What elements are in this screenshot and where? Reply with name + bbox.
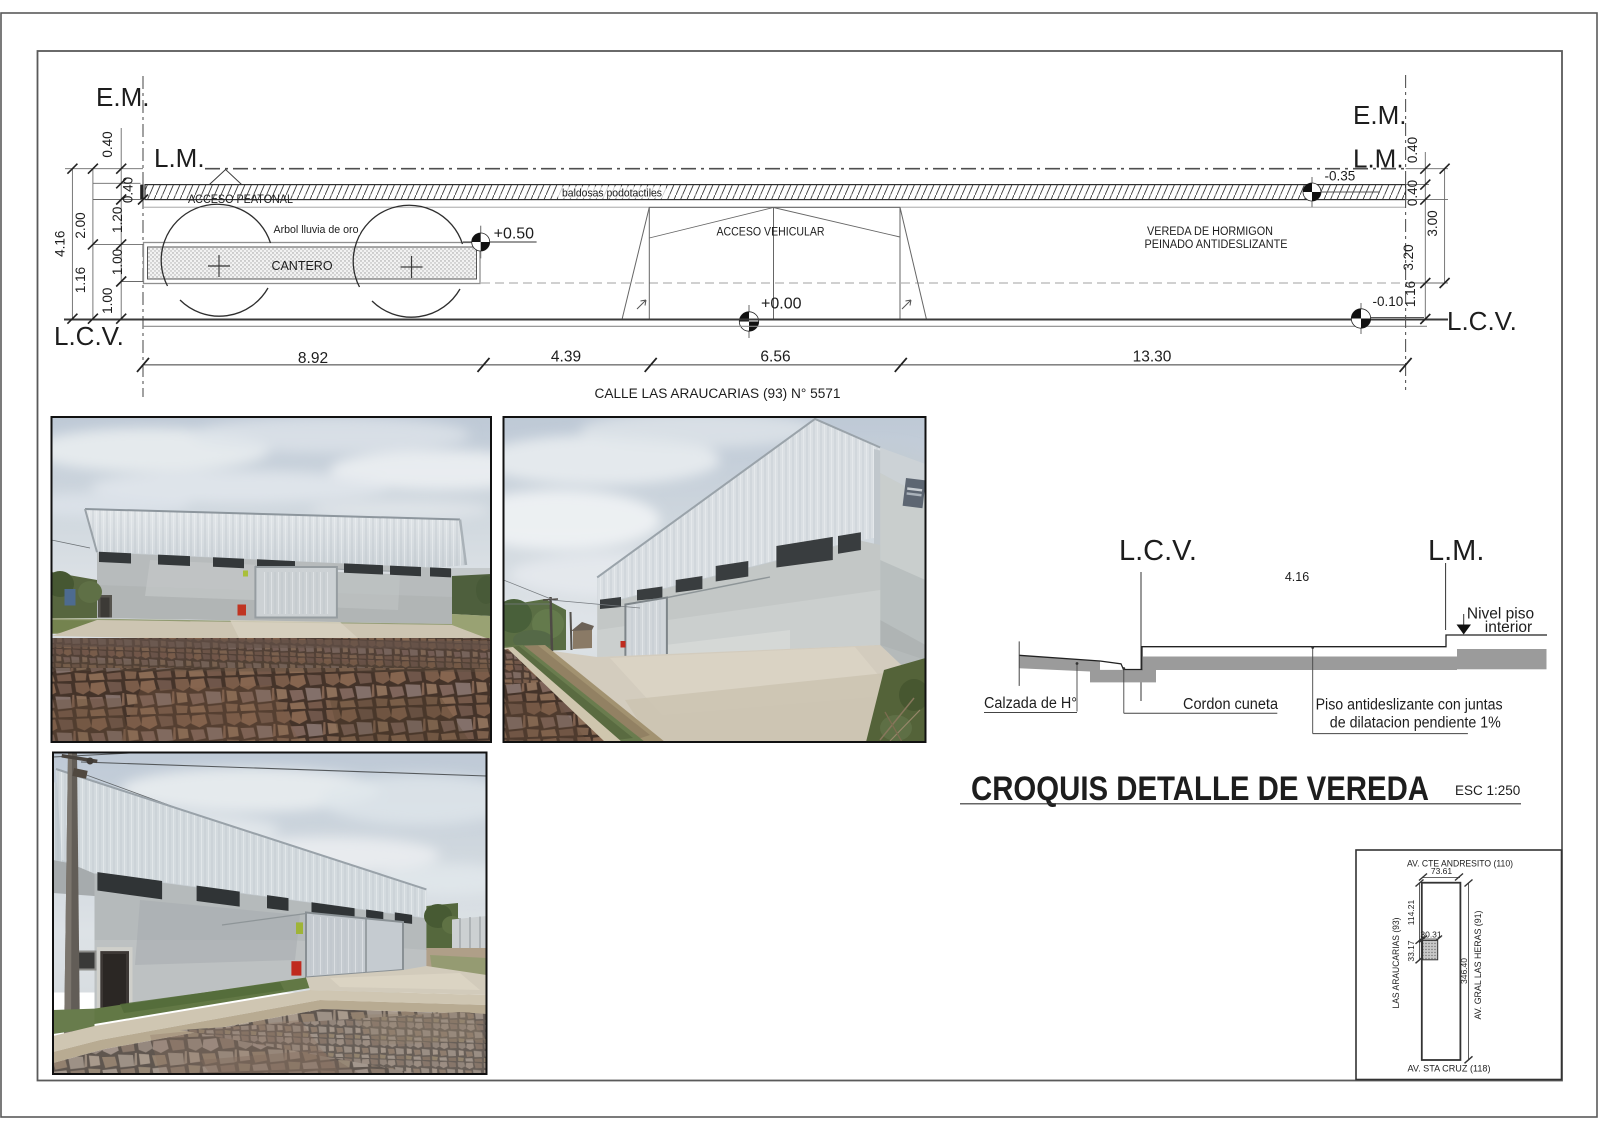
svg-text:+0.50: +0.50 <box>494 226 535 243</box>
svg-text:1.16: 1.16 <box>1403 281 1418 307</box>
svg-text:4.16: 4.16 <box>1285 570 1309 584</box>
svg-text:3.20: 3.20 <box>1401 244 1416 270</box>
svg-text:CANTERO: CANTERO <box>271 259 332 273</box>
svg-text:ESC 1:250: ESC 1:250 <box>1455 783 1520 798</box>
svg-text:L.M.: L.M. <box>1353 144 1404 174</box>
svg-text:1.00: 1.00 <box>100 288 115 314</box>
svg-text:E.M.: E.M. <box>1353 100 1406 130</box>
svg-text:LAS ARAUCARIAS (93): LAS ARAUCARIAS (93) <box>1391 918 1402 1009</box>
svg-text:baldosas podotactiles: baldosas podotactiles <box>562 188 662 200</box>
svg-text:0.40: 0.40 <box>121 177 136 203</box>
svg-text:0.40: 0.40 <box>1405 137 1420 163</box>
svg-text:VEREDA DE HORMIGON: VEREDA DE HORMIGON <box>1147 226 1273 238</box>
svg-text:L.C.V.: L.C.V. <box>1447 306 1517 336</box>
svg-text:73.61: 73.61 <box>1431 866 1453 876</box>
svg-text:AV. CTE ANDRESITO (110): AV. CTE ANDRESITO (110) <box>1407 859 1513 870</box>
svg-text:Cordon cuneta: Cordon cuneta <box>1183 696 1278 713</box>
svg-text:L.C.V.: L.C.V. <box>54 321 124 351</box>
svg-text:PEINADO ANTIDESLIZANTE: PEINADO ANTIDESLIZANTE <box>1145 239 1288 251</box>
svg-text:ACCESO PEATONAL: ACCESO PEATONAL <box>188 194 294 206</box>
svg-text:1.00: 1.00 <box>110 249 125 275</box>
svg-text:1.16: 1.16 <box>73 267 88 293</box>
svg-text:ACCESO VEHICULAR: ACCESO VEHICULAR <box>717 227 825 239</box>
svg-text:2.00: 2.00 <box>73 212 88 238</box>
svg-text:AV. GRAL LAS HERAS (91): AV. GRAL LAS HERAS (91) <box>1473 911 1484 1020</box>
svg-text:de dilatacion pendiente 1%: de dilatacion pendiente 1% <box>1330 715 1501 732</box>
svg-text:Arbol lluvia de oro: Arbol lluvia de oro <box>274 224 359 236</box>
svg-text:E.M.: E.M. <box>96 82 149 112</box>
svg-text:0.40: 0.40 <box>100 131 115 157</box>
svg-text:Calzada de H°: Calzada de H° <box>984 695 1077 712</box>
svg-text:L.M.: L.M. <box>154 143 205 173</box>
svg-text:4.16: 4.16 <box>53 231 68 257</box>
svg-text:L.M.: L.M. <box>1428 535 1484 567</box>
svg-text:0.40: 0.40 <box>1405 180 1420 206</box>
svg-text:13.30: 13.30 <box>1133 349 1172 366</box>
svg-text:CALLE LAS ARAUCARIAS (93) N° 5: CALLE LAS ARAUCARIAS (93) N° 5571 <box>595 386 841 402</box>
svg-text:Piso antideslizante con juntas: Piso antideslizante con juntas <box>1316 697 1503 714</box>
svg-text:AV. STA CRUZ (118): AV. STA CRUZ (118) <box>1408 1064 1491 1075</box>
svg-text:interior: interior <box>1485 619 1532 636</box>
svg-text:8.92: 8.92 <box>298 350 328 367</box>
svg-text:346.40: 346.40 <box>1459 958 1469 984</box>
svg-text:L.C.V.: L.C.V. <box>1119 535 1197 567</box>
svg-text:6.56: 6.56 <box>760 349 790 366</box>
svg-text:-0.10: -0.10 <box>1373 294 1404 309</box>
svg-text:4.39: 4.39 <box>551 349 581 366</box>
svg-text:3.00: 3.00 <box>1425 210 1440 236</box>
svg-text:1.20: 1.20 <box>110 207 125 233</box>
svg-text:CROQUIS DETALLE DE VEREDA: CROQUIS DETALLE DE VEREDA <box>971 770 1429 808</box>
svg-text:+0.00: +0.00 <box>761 296 802 313</box>
svg-text:114.21: 114.21 <box>1406 900 1416 926</box>
svg-text:33.17: 33.17 <box>1406 940 1416 962</box>
svg-text:-0.35: -0.35 <box>1325 169 1356 184</box>
